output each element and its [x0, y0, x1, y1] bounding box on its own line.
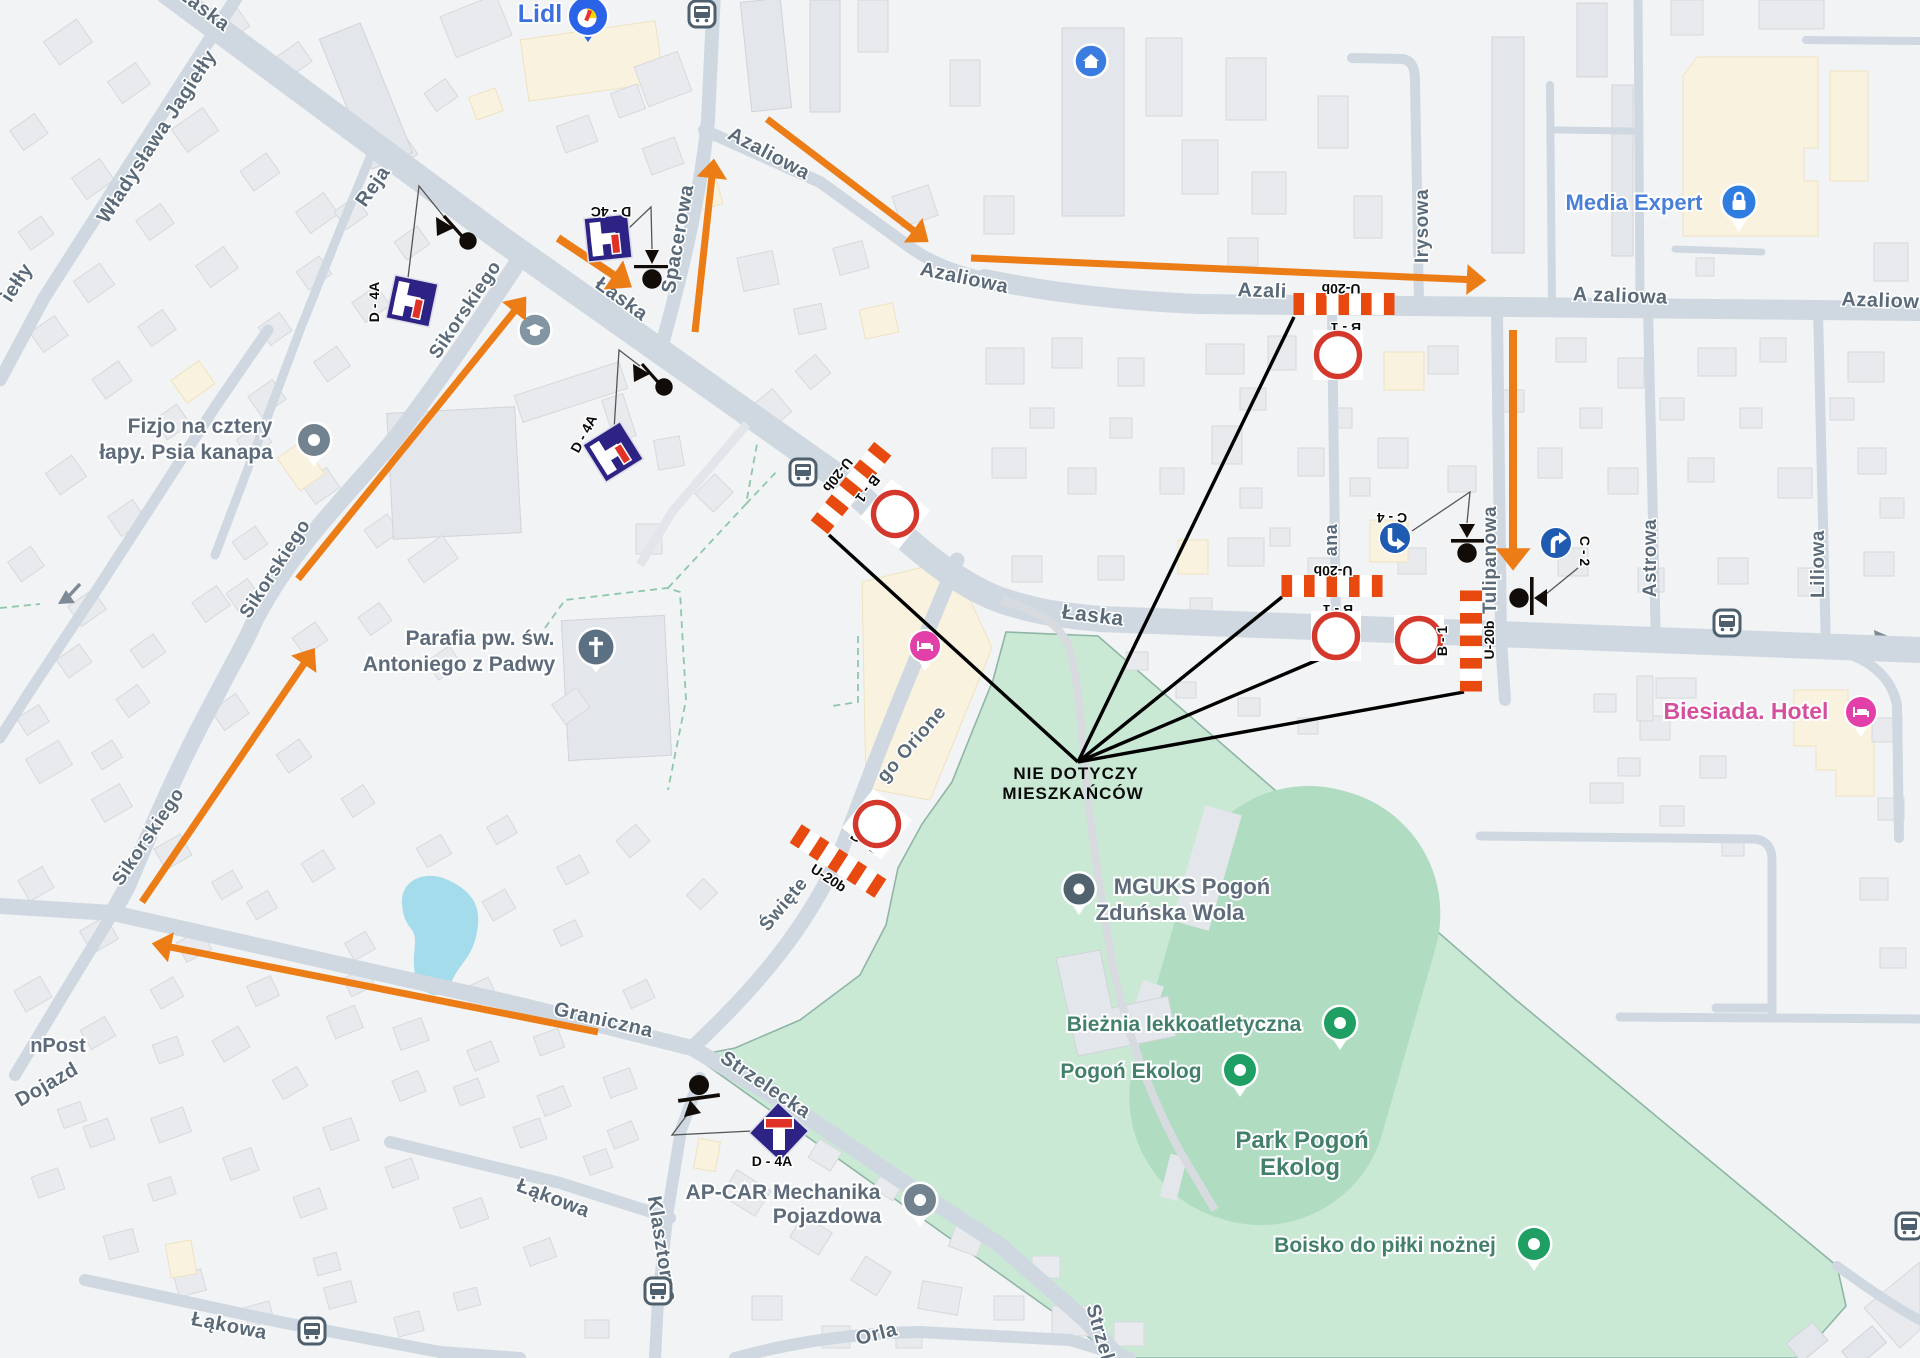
svg-text:U-20b: U-20b: [1322, 281, 1361, 297]
svg-text:Bieżnia lekkoatletyczna: Bieżnia lekkoatletyczna: [1067, 1013, 1302, 1036]
svg-text:Antoniego z Padwy: Antoniego z Padwy: [363, 653, 556, 676]
svg-text:NIE DOTYCZY: NIE DOTYCZY: [1013, 764, 1138, 783]
svg-text:Liliowa: Liliowa: [1808, 530, 1829, 598]
svg-text:Ekolog: Ekolog: [1260, 1154, 1340, 1181]
svg-text:ana: ana: [1321, 523, 1341, 556]
svg-text:Irysowa: Irysowa: [1412, 189, 1433, 263]
svg-text:Biesiada. Hotel: Biesiada. Hotel: [1664, 698, 1829, 724]
svg-text:Park Pogoń: Park Pogoń: [1235, 1127, 1368, 1154]
svg-text:C - 4: C - 4: [1377, 510, 1408, 526]
svg-text:B - 1: B - 1: [1434, 626, 1450, 657]
svg-text:C - 2: C - 2: [1577, 536, 1593, 567]
svg-text:Parafia pw. św.: Parafia pw. św.: [406, 627, 555, 650]
svg-text:U-20b: U-20b: [1481, 621, 1497, 660]
svg-text:D - 4A: D - 4A: [366, 282, 382, 322]
svg-text:Media Expert: Media Expert: [1566, 190, 1704, 215]
svg-text:Pojazdowa: Pojazdowa: [773, 1205, 882, 1228]
svg-text:nPost: nPost: [30, 1035, 86, 1057]
svg-text:Boisko do piłki nożnej: Boisko do piłki nożnej: [1274, 1234, 1496, 1257]
svg-text:Azaliowa: Azaliowa: [1841, 288, 1920, 313]
svg-text:Zduńska Wola: Zduńska Wola: [1096, 900, 1245, 925]
svg-text:łapy. Psia kanapa: łapy. Psia kanapa: [99, 441, 273, 464]
svg-text:U-20b: U-20b: [1314, 563, 1353, 579]
svg-text:D - 4C: D - 4C: [591, 204, 631, 220]
svg-text:Astrowa: Astrowa: [1640, 519, 1661, 597]
svg-text:MIESZKAŃCÓW: MIESZKAŃCÓW: [1002, 784, 1143, 803]
svg-text:MGUKS Pogoń: MGUKS Pogoń: [1114, 874, 1270, 899]
svg-text:Tulipanowa: Tulipanowa: [1480, 506, 1501, 614]
svg-text:Azali: Azali: [1237, 279, 1287, 303]
svg-text:Lidl: Lidl: [518, 0, 562, 28]
svg-text:AP-CAR Mechanika: AP-CAR Mechanika: [686, 1181, 881, 1204]
svg-text:A zaliowa: A zaliowa: [1572, 283, 1668, 308]
svg-text:D - 4A: D - 4A: [752, 1153, 792, 1169]
svg-text:Fizjo na cztery: Fizjo na cztery: [128, 415, 273, 438]
svg-text:Pogoń Ekolog: Pogoń Ekolog: [1060, 1060, 1201, 1083]
